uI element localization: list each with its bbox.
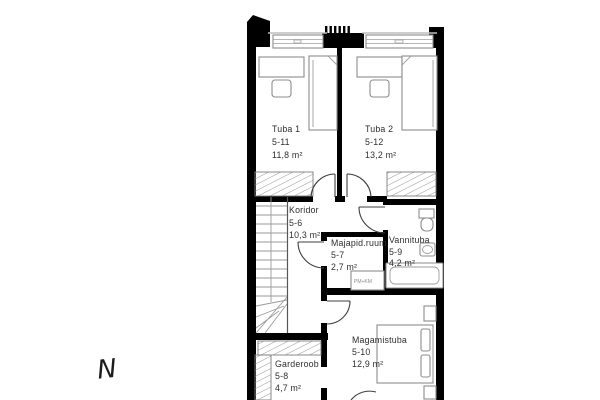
desk-tuba2: [357, 57, 402, 77]
room-name: Garderoob: [275, 359, 319, 369]
north-compass-icon: N: [96, 354, 118, 386]
room-number: 5-8: [275, 371, 288, 381]
corridor-wall-left: [256, 196, 313, 202]
wardrobe-east-wall-a: [321, 340, 327, 367]
room-number: 5-6: [289, 218, 302, 228]
chair-tuba1: [272, 80, 291, 97]
bed-tuba1: [309, 56, 337, 130]
room-name: Koridor: [289, 205, 319, 215]
window-tuba2: [366, 35, 433, 48]
window-tuba1: [273, 35, 323, 48]
bathroom-bottom-wall: [383, 288, 444, 295]
label-tuba2: Tuba 2 5-12 13,2 m²: [365, 124, 396, 160]
room-name: Vannituba: [389, 235, 430, 245]
corridor-wall-center: [335, 196, 345, 202]
utility-left-wall-a: [321, 237, 327, 241]
room-number: 5-12: [365, 137, 383, 147]
room-area: 4,7 m²: [275, 383, 301, 393]
room-area: 13,2 m²: [365, 150, 396, 160]
toilet: [419, 209, 434, 231]
bed-master: [377, 325, 433, 383]
room-area: 4,2 m²: [389, 258, 415, 268]
room-number: 5-10: [352, 347, 370, 357]
nightstand-top: [424, 306, 436, 321]
door-bathroom: [359, 207, 385, 233]
chair-tuba2: [370, 80, 389, 97]
desk-tuba1: [259, 57, 304, 77]
nightstand-bottom: [424, 386, 436, 399]
room-area: 11,8 m²: [272, 150, 303, 160]
room-number: 5-7: [331, 250, 344, 260]
staircase: [256, 197, 288, 333]
closet-wardrobe-top: [258, 341, 321, 355]
bathroom-top-wall: [383, 199, 444, 205]
room-name: Tuba 1: [272, 124, 300, 134]
door-bedroom: [327, 301, 350, 324]
door-bottom-partial: [351, 391, 376, 400]
room-area: 12,9 m²: [352, 359, 383, 369]
closet-tuba2: [387, 172, 436, 196]
top-wall-center: [322, 33, 364, 48]
room-area: 10,3 m²: [289, 230, 320, 240]
wardrobe-east-wall-b: [321, 388, 327, 400]
wall-teeth-marks: [325, 26, 350, 33]
room-name: Majapid.ruum: [331, 238, 387, 248]
utility-top-wall: [321, 232, 383, 237]
door-utility: [298, 242, 324, 268]
closet-tuba1: [255, 172, 313, 196]
wardrobe-north-wall: [247, 333, 328, 340]
label-koridor: Koridor 5-6 10,3 m²: [289, 205, 320, 240]
room-number: 5-11: [272, 137, 290, 147]
door-tuba2: [347, 174, 371, 197]
room-number: 5-9: [389, 247, 402, 257]
room-name: Tuba 2: [365, 124, 393, 134]
floor-plan-drawing: PM+KM Tuba 1 5-11 11,8 m² Tuba 2 5-12 13…: [0, 0, 600, 400]
room-name: Magamistuba: [352, 335, 407, 345]
room-area: 2,7 m²: [331, 262, 357, 272]
washer-dryer-label: PM+KM: [354, 279, 372, 285]
label-tuba1: Tuba 1 5-11 11,8 m²: [272, 124, 303, 160]
floor-plan-page: PM+KM Tuba 1 5-11 11,8 m² Tuba 2 5-12 13…: [0, 0, 600, 400]
bedroom-west-wall-a: [321, 295, 327, 301]
closet-wardrobe-left: [255, 355, 271, 400]
washer-dryer: PM+KM: [351, 271, 384, 290]
wall-between-tuba1-tuba2: [337, 47, 342, 198]
label-majapidruum: Majapid.ruum 5-7 2,7 m²: [331, 238, 387, 272]
label-garderoob: Garderoob 5-8 4,7 m²: [275, 359, 319, 393]
door-tuba1: [311, 174, 335, 197]
bed-tuba2: [402, 56, 437, 130]
